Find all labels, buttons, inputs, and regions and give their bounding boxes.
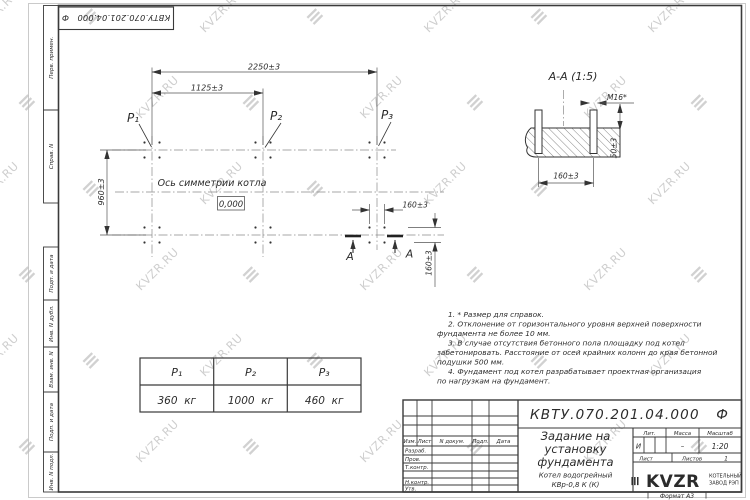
dim-bolt-protrusion: 50±3 [610,137,619,158]
note-line: фундамента не более 10 мм. [437,329,551,338]
mass-value: – [681,442,685,450]
section-letter-left: А [345,250,354,263]
load-table-header-p3: Р₃ [319,366,331,379]
margin-label-podp-data-2: Подп. и дата [49,402,55,441]
section-view-a-a: А-А (1:5) М16* 50±3 160±3 [525,70,634,187]
col-doc: N докум. [440,439,465,445]
company-name-line2: ЗАВОД РЭП [709,481,739,487]
mass-label: Масса [674,431,691,437]
doc-number: КВТУ.070.201.04.000 Ф [530,407,729,423]
row-developed: Разраб. [405,449,426,455]
margin-label-podp-data-1: Подп. и дата [49,254,55,293]
lit-label: Лит. [642,431,655,437]
cad-canvas: Формат А3 Перв. примен. Справ. N Подп. и… [0,0,750,500]
margin-label-inv-podl: Инв. N подл. [49,453,55,490]
load-point-leaders [139,122,391,148]
level-mark-value: 0,000 [219,200,243,210]
row-ncontrol: Н.контр. [405,480,429,486]
load-table-header-p1: Р₁ [171,366,182,379]
dim-bolt-spacing-h: 160±3 [403,201,429,210]
dim-total-width: 2250±3 [248,63,280,72]
dim-section-bolt-spacing: 160±3 [553,172,579,181]
load-point-p3: Р₃ [381,108,393,122]
anchor-bolt-right [590,110,597,154]
margin-label-vzam-inv: Взам. инв. N [49,351,55,388]
kvzr-logo: KVZR [646,472,700,492]
sheets-value: 1 [724,456,728,463]
section-letter-right: А [405,248,414,261]
note-line: подушки 500 мм. [437,358,504,367]
kvzr-bars-icon: ≡ [628,476,643,487]
scale-label: Масштаб [707,431,733,437]
axis-of-symmetry-label: Ось симметрии котла [158,178,267,189]
anchor-bolt-dots [143,141,385,243]
doc-title-line3: фундамента [537,455,613,469]
scale-value: 1:20 [712,442,729,451]
note-line: забетонировать. Расстояние от осей крайн… [437,348,718,357]
plan-dimension-lines [100,68,441,288]
note-line: 2. Отклонение от горизонтального уровня … [448,320,702,329]
margin-label-sprav-n: Справ. N [49,143,55,169]
row-checked: Пров. [405,457,421,463]
col-izm: Изм. [404,439,417,445]
top-margin-stamp: КВТУ.070.201.04.000 Ф [59,7,174,30]
note-line: 1. * Размер для справок. [448,310,544,319]
product-line1: Котел водогрейный [539,472,613,480]
format-label: Формат А3 [660,493,694,500]
doc-title-line2: установку [544,442,607,456]
margin-label-perv-primen: Перв. примен. [49,36,55,78]
sheet-frame [29,4,746,499]
load-table-value-p3: 460 кг [305,395,344,407]
plan-centerlines [112,136,444,257]
drawing-sheet: KVZR.RU≡KVZR.RU≡KVZR.RU≡KVZR.RU≡KVZR.RU≡… [0,0,750,500]
load-table-header-p2: Р₂ [245,366,257,379]
load-point-p2: Р₂ [270,109,282,123]
row-approved: Утв. [405,487,416,493]
anchor-bolt-left [535,110,542,154]
col-date: Дата [496,439,511,445]
notes-block: 1. * Размер для справок. 2. Отклонение о… [437,310,718,386]
top-stamp-doc-number: КВТУ.070.201.04.000 Ф [62,13,171,23]
sheets-label: Листов [681,456,702,462]
load-table-value-p2: 1000 кг [228,395,274,407]
section-title: А-А (1:5) [548,70,598,83]
doc-title-line1: Задание на [541,429,611,443]
company-name-line1: КОТЕЛЬНЫЙ [709,473,742,480]
title-block: Изм. Лист N докум. Подп. Дата Разраб. Пр… [403,400,742,493]
load-table-value-p1: 360 кг [158,395,197,407]
note-line: 4. Фундамент под котел разрабатывает про… [448,367,702,376]
dim-half-width: 1125±3 [191,84,223,93]
note-line: по нагрузкам на фундамент. [437,377,550,386]
dim-bolt-spacing-v: 160±3 [425,250,434,276]
row-tcontrol: Т.контр. [405,465,428,471]
dim-depth: 960±3 [97,178,106,205]
note-line: 3. В случае отсутствия бетонного пола пл… [448,339,685,348]
sheet-label: Лист [638,456,654,462]
margin-column-labels: Перв. примен. Справ. N Подп. и дата Инв.… [49,36,55,490]
product-line2: КВр-0,8 К (К) [552,481,600,489]
load-point-p1: Р₁ [127,111,139,125]
lit-value: И [636,443,642,451]
margin-label-inv-dubl: Инв. N дубл. [49,305,55,342]
load-table: Р₁ Р₂ Р₃ 360 кг 1000 кг 460 кг [140,358,361,412]
col-list: Лист [417,439,433,445]
bolt-thread-label: М16* [607,93,627,102]
col-sign: Подп. [472,439,488,445]
foundation-plan-view: 2250±3 1125±3 960±3 Р₁ Р₂ Р₃ Ось симметр… [97,63,444,288]
